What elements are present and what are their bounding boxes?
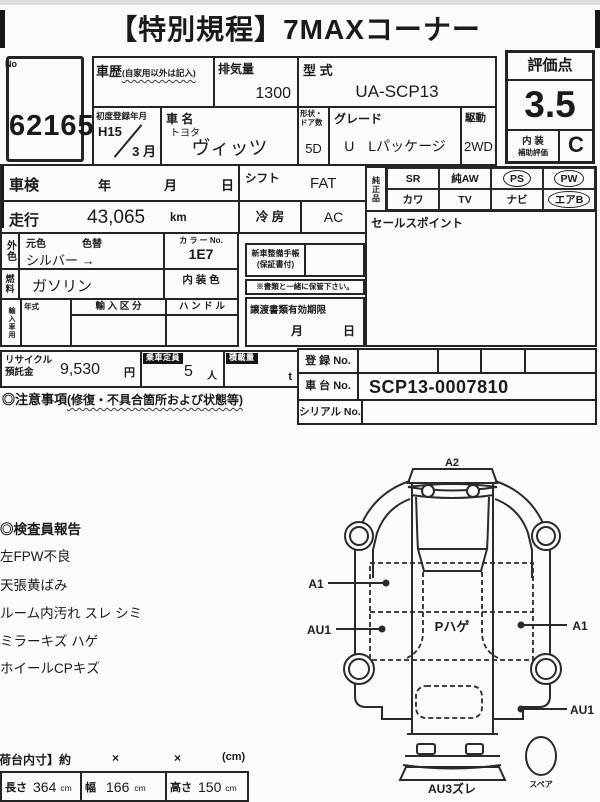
- first-registration-year: H15: [98, 124, 122, 139]
- history-label: 車歴: [96, 64, 122, 79]
- right-mirror: [467, 485, 479, 497]
- reg-divider: [524, 350, 526, 372]
- oem-airbag: エアB: [543, 189, 595, 210]
- keep-note-strip: ※書類と一緒に保管下さい。: [245, 279, 365, 295]
- cargo-width-cell: 幅 166 cm: [80, 771, 167, 802]
- cool-value: AC: [302, 202, 365, 232]
- mileage-label: 走行: [9, 209, 39, 230]
- diagram-label-a2: A2: [445, 457, 459, 469]
- score-label: 評価点: [508, 53, 592, 81]
- car-name-value: ヴィッツ: [162, 133, 297, 160]
- recycle-yen: 円: [124, 364, 135, 380]
- interior-score-value: C: [560, 131, 592, 163]
- service-notebook-label: 新車整備手帳 (保証書付): [247, 245, 306, 275]
- interior-color-label: 内 装 色: [165, 270, 237, 287]
- oem-pw: PW: [543, 168, 595, 189]
- drive-cell: 駆動 2WD: [460, 106, 497, 166]
- color-change-label: 色替: [82, 235, 102, 250]
- import-side-label: 輸入車用: [2, 300, 22, 345]
- base-color-value: シルバー →: [26, 250, 95, 269]
- front-bumper: [408, 469, 497, 483]
- mileage-cell: 走行 43,065 km: [0, 200, 240, 234]
- windshield: [418, 549, 487, 571]
- reg-divider: [480, 350, 482, 372]
- registration-no-row: 登 録 No.: [297, 348, 597, 374]
- reg-divider: [437, 350, 439, 372]
- cargo-dims-x1: ×: [112, 751, 119, 765]
- cargo-dims-unit: (cm): [222, 751, 245, 763]
- serial-no-label: シリアル No.: [299, 401, 363, 423]
- diagram-label-spare: スペア: [529, 780, 552, 789]
- caution-note: (修復・不具合箇所および状態等): [67, 393, 243, 407]
- fuel-side-label: 燃料: [2, 270, 20, 298]
- seating-capacity-label: 乗車定員: [143, 353, 183, 364]
- rear-window-dashed: [416, 686, 482, 718]
- diagram-label-rear: AU3ズレ: [428, 781, 476, 796]
- seating-capacity-cell: 乗車定員 5 人: [140, 350, 225, 388]
- page-title: 【特別規程】7MAXコーナー: [0, 8, 590, 48]
- model-code-cell: 型 式 UA-SCP13: [297, 56, 497, 108]
- report-item: ホイールCPキズ: [0, 657, 100, 677]
- chassis-no-value: SCP13-0007810: [369, 377, 509, 398]
- score-box: 評価点 3.5 内 装 補助評価 C: [505, 50, 595, 164]
- scan-mark-top-right: [595, 10, 600, 48]
- doors-value: 5D: [299, 141, 328, 156]
- load-capacity-label: 積載量: [226, 353, 258, 364]
- grade-value: U Lパッケージ: [330, 136, 460, 156]
- oem-label: 純正品: [367, 168, 387, 210]
- cool-cell: 冷 房 AC: [238, 200, 367, 234]
- spare-tire: [526, 737, 556, 775]
- first-registration-month: 3 月: [132, 141, 156, 160]
- shift-label: シフト: [245, 170, 280, 186]
- shift-cell: シフト FAT: [238, 164, 367, 202]
- grade-cell: グレード U Lパッケージ: [328, 106, 462, 166]
- displacement-cell: 排気量 1300: [213, 56, 299, 108]
- recycle-deposit-cell: リサイクル預託金 9,530 円: [0, 350, 142, 388]
- oem-equipment-grid: 純正品 SR 純AW PS PW カワ TV ナビ エアB: [365, 166, 597, 212]
- first-registration-cell: 初度登録年月 H15 3 月: [92, 106, 162, 166]
- shift-value: FAT: [310, 175, 336, 192]
- shaken-cell: 車検 年 月 日: [0, 164, 240, 202]
- import-year-label: 年式: [24, 301, 39, 312]
- oem-sr: SR: [387, 168, 439, 189]
- transfer-docs-label: 譲渡書類有効期限: [250, 302, 326, 316]
- lot-number-box: No 62165: [6, 56, 84, 162]
- cargo-height-cell: 高さ 150 cm: [165, 771, 249, 802]
- oem-kawa: カワ: [387, 189, 439, 210]
- oem-ps: PS: [491, 168, 543, 189]
- sales-point-box: セールスポイント: [365, 210, 597, 347]
- caution-line: ◎注意事項(修復・不具合箇所および状態等): [2, 389, 243, 408]
- seating-capacity-value: 5: [184, 363, 193, 381]
- oem-navi: ナビ: [491, 189, 543, 210]
- transfer-month-label: 月: [291, 322, 303, 339]
- chassis-no-label: 車 台 No.: [299, 374, 359, 399]
- drive-value: 2WD: [462, 139, 495, 154]
- load-capacity-unit: t: [288, 371, 292, 383]
- left-mirror: [422, 485, 434, 497]
- grade-label: グレード: [334, 110, 382, 127]
- service-notebook-box: 新車整備手帳 (保証書付): [245, 243, 365, 277]
- serial-no-row: シリアル No.: [297, 399, 597, 425]
- import-handle-label: ハ ン ド ル: [167, 300, 237, 316]
- lot-number: 62165: [9, 110, 81, 143]
- drive-label: 駆動: [465, 110, 486, 125]
- registration-no-label: 登 録 No.: [299, 350, 359, 372]
- fuel-cell: 燃料 ガソリン: [0, 268, 165, 300]
- color-no-cell: カ ラ ー No. 1E7: [163, 232, 239, 270]
- scan-edge-top: [0, 0, 600, 5]
- diagram-label-right-au1: AU1: [570, 703, 594, 717]
- shaken-month-label: 月: [164, 175, 177, 194]
- history-note: (自家用以外は記入): [122, 68, 196, 78]
- displacement-value: 1300: [255, 85, 291, 103]
- rear-light-left: [417, 744, 435, 754]
- cargo-length-cell: 長さ 364 cm: [0, 771, 82, 802]
- import-class-cell: 輸 入 区 分: [72, 300, 167, 345]
- auction-sheet: { "page": {"title": "【特別規程】7MAXコーナー"}, "…: [0, 0, 600, 800]
- fuel-value: ガソリン: [32, 275, 92, 296]
- caution-title: ◎注意事項: [2, 392, 67, 407]
- shaken-label: 車検: [9, 174, 39, 195]
- oem-tv: TV: [439, 189, 491, 210]
- report-item: 天張黄ばみ: [0, 574, 68, 594]
- recycle-amount: 9,530: [60, 361, 100, 379]
- score-value: 3.5: [508, 81, 592, 129]
- oem-aw: 純AW: [439, 168, 491, 189]
- import-year-cell: 年式: [22, 300, 72, 345]
- report-item: ミラーキズ ハゲ: [0, 630, 98, 650]
- color-no-label: カ ラ ー No.: [165, 234, 237, 246]
- exterior-color-cell: 外色 元色 色替 シルバー →: [0, 232, 165, 270]
- import-row: 輸入車用 年式 輸 入 区 分 ハ ン ド ル: [0, 298, 239, 347]
- model-code-label: 型 式: [303, 60, 333, 79]
- diagram-label-left-a1: A1: [308, 577, 324, 591]
- cargo-dims-header: 【荷台内寸】約: [0, 751, 71, 768]
- car-name-cell: 車 名 トヨタ ヴィッツ: [160, 106, 299, 166]
- report-item: ルーム内汚れ スレ シミ: [0, 602, 142, 622]
- diagram-label-right-a1: A1: [572, 619, 588, 633]
- diagram-label-roof: Pハゲ: [435, 619, 470, 634]
- import-handle-cell: ハ ン ド ル: [167, 300, 237, 345]
- seating-capacity-unit: 人: [207, 367, 217, 382]
- diagram-label-left-au1: AU1: [307, 623, 331, 637]
- shaken-day-label: 日: [221, 175, 234, 194]
- chassis-no-row: 車 台 No. SCP13-0007810: [297, 372, 597, 401]
- doors-label: 形状・ドア数: [300, 110, 328, 127]
- rear-light-right: [466, 744, 483, 754]
- mileage-unit: km: [170, 212, 187, 224]
- report-item: 左FPW不良: [0, 545, 71, 565]
- history-cell: 車歴(自家用以外は記入): [92, 56, 215, 108]
- inspector-report-title: ◎検査員報告: [0, 518, 81, 538]
- cargo-dims-x2: ×: [174, 751, 181, 765]
- cool-label: 冷 房: [240, 202, 302, 232]
- interior-color-cell: 内 装 色: [163, 268, 239, 300]
- mileage-value: 43,065: [87, 207, 145, 229]
- first-registration-label: 初度登録年月: [96, 110, 147, 122]
- transfer-day-label: 日: [343, 322, 355, 339]
- exterior-side-label: 外色: [2, 234, 20, 268]
- doors-cell: 形状・ドア数 5D: [297, 106, 330, 166]
- car-damage-diagram: A2 A1 AU1 A1 AU1 Pハゲ AU3ズレ スペア: [295, 450, 600, 800]
- displacement-label: 排気量: [218, 60, 254, 77]
- lot-no-label: No: [5, 59, 17, 69]
- model-code-value: UA-SCP13: [299, 82, 495, 102]
- load-capacity-cell: 積載量 t: [223, 350, 299, 388]
- base-color-label: 元色: [26, 235, 46, 250]
- recycle-label: リサイクル預託金: [5, 355, 52, 380]
- transfer-docs-box: 譲渡書類有効期限 月 日: [245, 297, 365, 347]
- import-class-label: 輸 入 区 分: [72, 300, 165, 316]
- sales-point-label: セールスポイント: [371, 215, 463, 231]
- color-no-value: 1E7: [165, 246, 237, 262]
- shaken-year-label: 年: [98, 175, 111, 194]
- interior-score-label: 内 装 補助評価: [508, 131, 560, 163]
